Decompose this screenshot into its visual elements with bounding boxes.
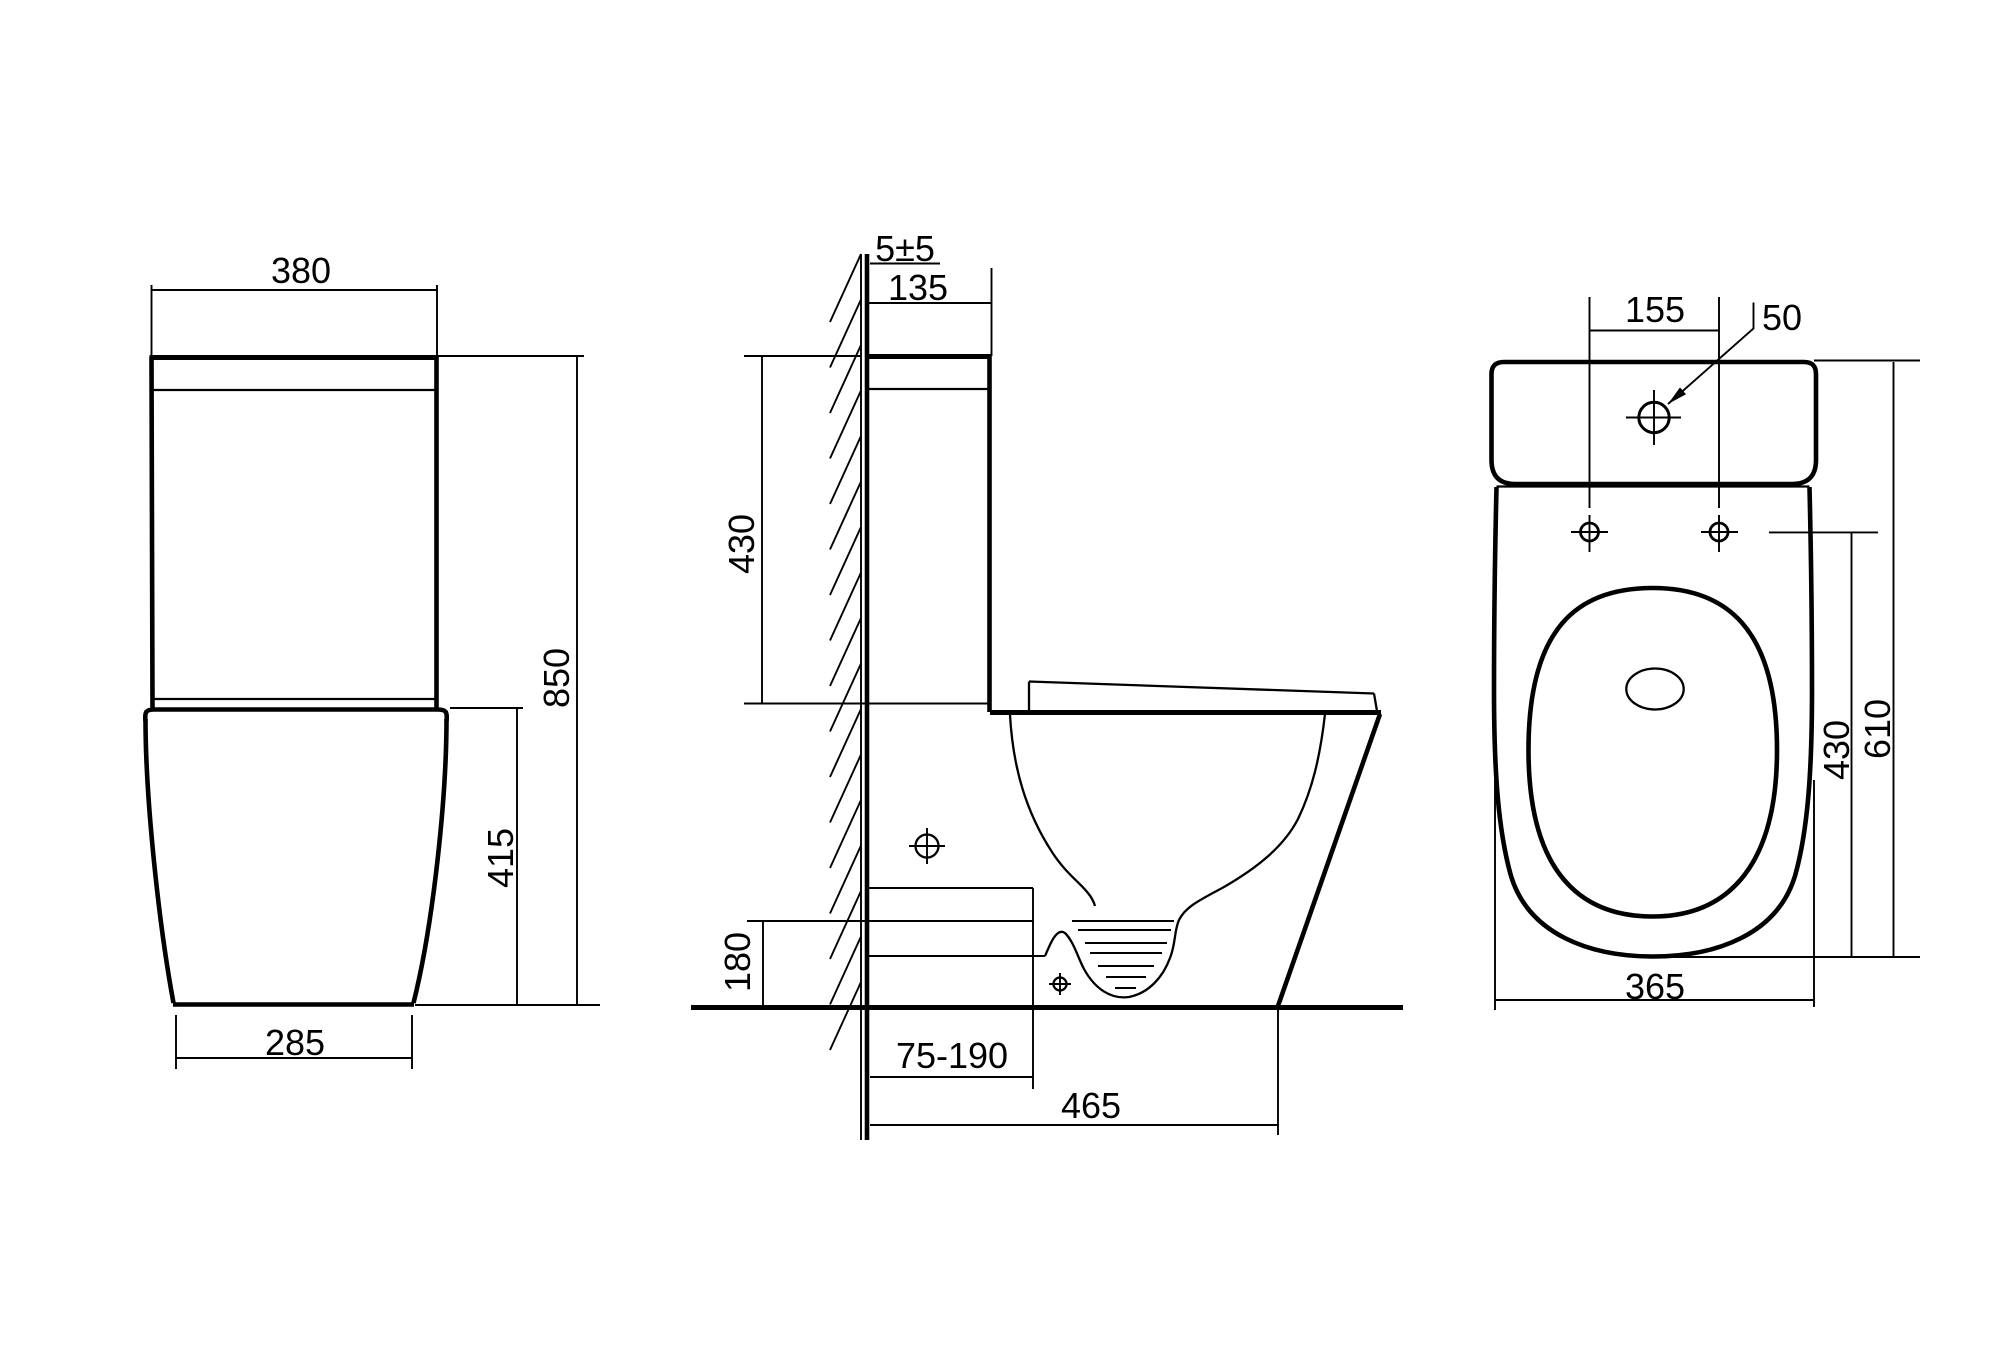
svg-text:135: 135 (888, 267, 948, 308)
svg-text:180: 180 (717, 932, 758, 992)
svg-text:380: 380 (271, 250, 331, 291)
svg-text:155: 155 (1625, 289, 1685, 330)
svg-text:430: 430 (721, 514, 762, 574)
svg-text:430: 430 (1816, 720, 1857, 780)
svg-text:610: 610 (1857, 699, 1898, 759)
svg-text:75-190: 75-190 (896, 1035, 1008, 1076)
svg-text:50: 50 (1762, 297, 1802, 338)
svg-text:365: 365 (1625, 966, 1685, 1007)
svg-text:850: 850 (536, 648, 577, 708)
svg-text:465: 465 (1061, 1085, 1121, 1126)
svg-text:285: 285 (265, 1022, 325, 1063)
svg-text:415: 415 (480, 828, 521, 888)
